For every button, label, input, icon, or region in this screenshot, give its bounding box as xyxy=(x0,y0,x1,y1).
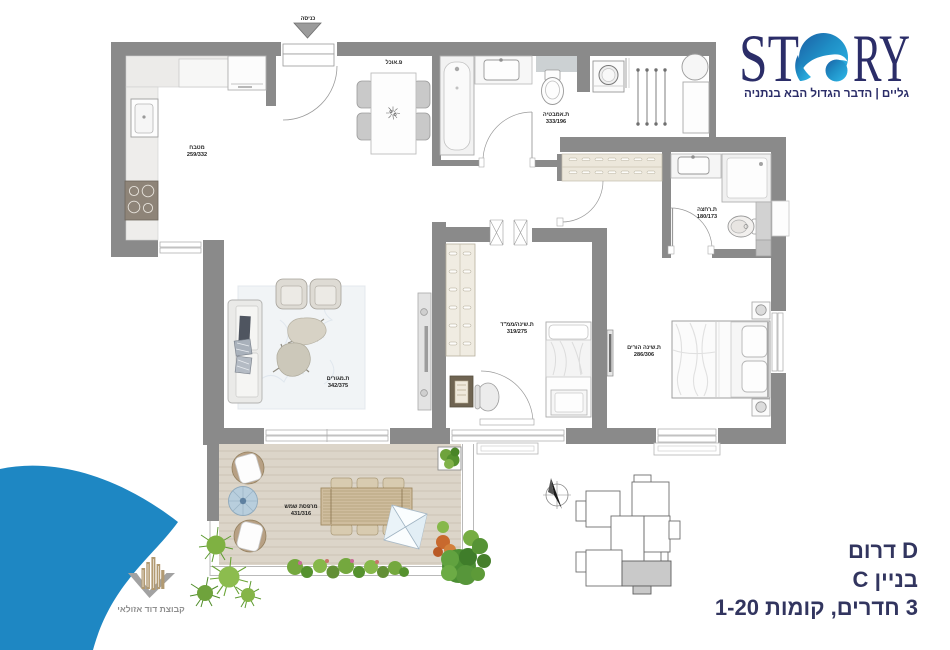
svg-text:D דרום: D דרום xyxy=(848,538,918,563)
svg-text:ת.רחצה: ת.רחצה xyxy=(697,207,717,213)
svg-text:ת.אמבטיה: ת.אמבטיה xyxy=(543,112,569,118)
svg-text:גליים | הדבר הגדול הבא בנתניה: גליים | הדבר הגדול הבא בנתניה xyxy=(744,87,909,100)
svg-text:מטבח: מטבח xyxy=(189,145,204,151)
svg-text:333/196: 333/196 xyxy=(546,119,566,125)
svg-text:286/306: 286/306 xyxy=(634,352,654,358)
svg-text:בניין C: בניין C xyxy=(853,567,919,592)
svg-text:ת.שינה הורים: ת.שינה הורים xyxy=(627,345,661,351)
svg-text:מרפסת שמש: מרפסת שמש xyxy=(284,504,317,510)
svg-text:259/332: 259/332 xyxy=(187,152,207,158)
svg-text:ת.שינה/ממ"ד: ת.שינה/ממ"ד xyxy=(500,322,534,328)
svg-text:180/173: 180/173 xyxy=(697,214,717,220)
svg-text:קבוצת דוד אזולאי: קבוצת דוד אזולאי xyxy=(117,604,185,614)
svg-text:ת.מגורים: ת.מגורים xyxy=(327,376,350,382)
svg-text:431/316: 431/316 xyxy=(291,511,311,517)
svg-text:319/275: 319/275 xyxy=(507,329,527,335)
svg-text:כניסה: כניסה xyxy=(301,16,316,22)
svg-text:3 חדרים, קומות 1-20: 3 חדרים, קומות 1-20 xyxy=(715,595,918,620)
svg-text:RY: RY xyxy=(853,20,910,96)
svg-text:342/375: 342/375 xyxy=(328,383,348,389)
svg-text:פ.אוכל: פ.אוכל xyxy=(386,59,403,66)
svg-text:ST: ST xyxy=(739,20,799,96)
